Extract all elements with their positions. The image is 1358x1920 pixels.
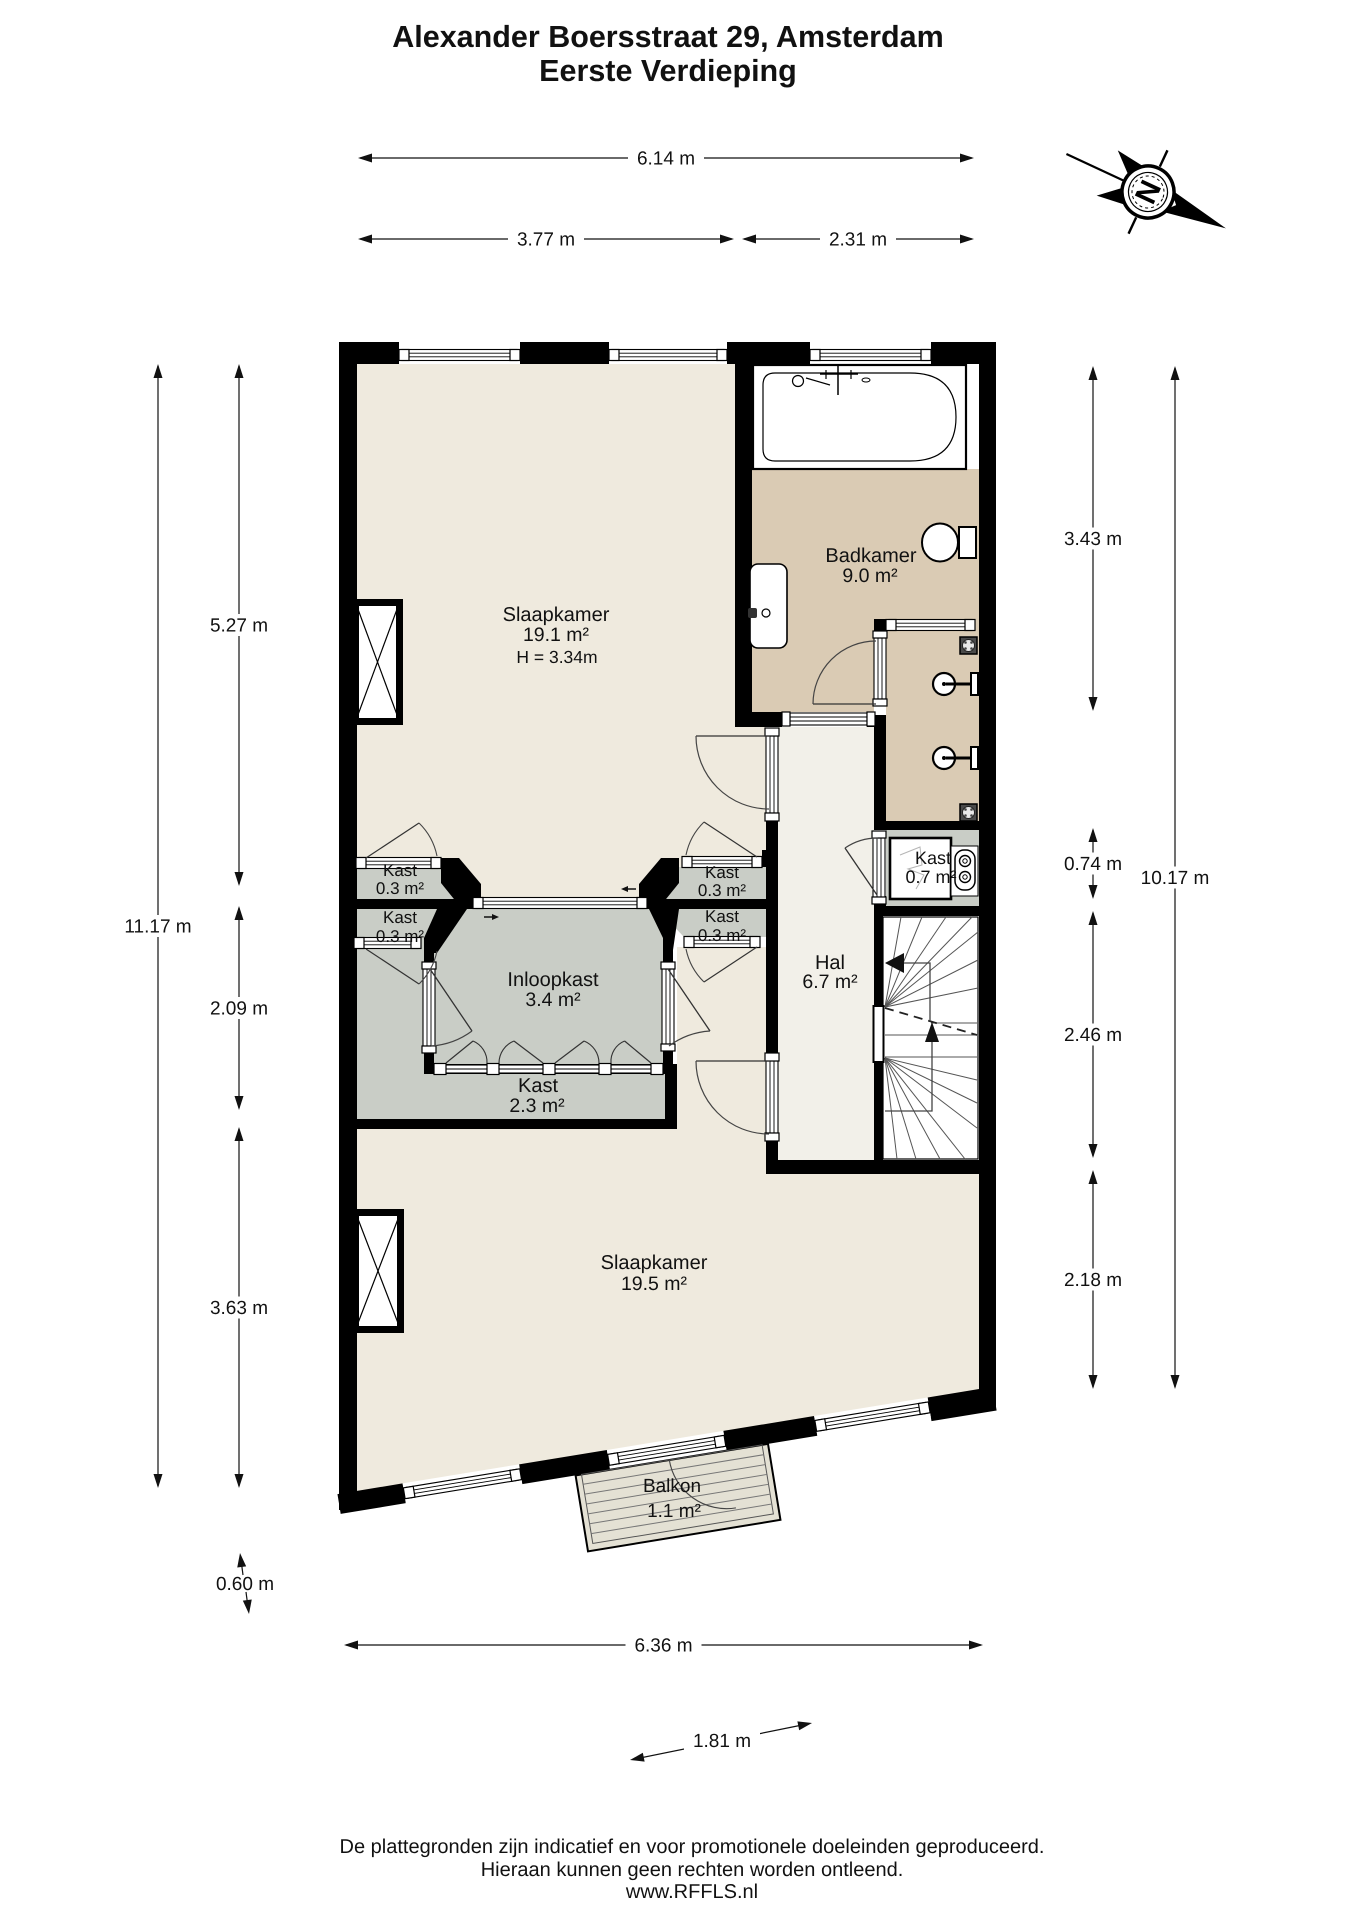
svg-text:Kast: Kast [383, 908, 417, 927]
svg-text:6.14 m: 6.14 m [637, 149, 695, 170]
svg-text:Hieraan kunnen geen rechten wo: Hieraan kunnen geen rechten worden ontle… [481, 1859, 904, 1881]
svg-text:3.4 m²: 3.4 m² [525, 989, 581, 1011]
svg-text:Kast: Kast [915, 848, 951, 868]
svg-text:3.77 m: 3.77 m [517, 230, 575, 251]
svg-text:2.46 m: 2.46 m [1064, 1025, 1122, 1046]
svg-text:Slaapkamer: Slaapkamer [601, 1252, 708, 1274]
svg-text:0.60 m: 0.60 m [216, 1574, 274, 1595]
svg-text:Kast: Kast [518, 1075, 558, 1097]
svg-text:Inloopkast: Inloopkast [507, 969, 599, 991]
svg-text:Eerste Verdieping: Eerste Verdieping [539, 54, 797, 88]
svg-text:0.3 m²: 0.3 m² [698, 926, 747, 945]
svg-text:Kast: Kast [383, 861, 417, 880]
svg-text:3.43 m: 3.43 m [1064, 529, 1122, 550]
svg-text:5.27 m: 5.27 m [210, 616, 268, 637]
svg-text:9.0 m²: 9.0 m² [842, 565, 898, 587]
svg-text:0.7 m²: 0.7 m² [905, 867, 956, 887]
svg-text:10.17 m: 10.17 m [1141, 868, 1210, 889]
svg-text:19.5 m²: 19.5 m² [621, 1273, 688, 1295]
svg-text:Balkon: Balkon [643, 1476, 701, 1497]
svg-text:19.1 m²: 19.1 m² [523, 624, 590, 646]
svg-text:Kast: Kast [705, 863, 739, 882]
svg-text:0.3 m²: 0.3 m² [376, 927, 425, 946]
svg-text:2.31 m: 2.31 m [829, 230, 887, 251]
svg-text:6.36 m: 6.36 m [634, 1636, 692, 1657]
svg-text:De plattegronden zijn indicati: De plattegronden zijn indicatief en voor… [340, 1836, 1045, 1858]
svg-text:3.63 m: 3.63 m [210, 1298, 268, 1319]
svg-text:0.74 m: 0.74 m [1064, 854, 1122, 875]
svg-text:Slaapkamer: Slaapkamer [503, 604, 610, 626]
svg-text:2.3 m²: 2.3 m² [509, 1095, 565, 1117]
svg-text:0.3 m²: 0.3 m² [698, 881, 747, 900]
svg-text:Alexander Boersstraat 29, Amst: Alexander Boersstraat 29, Amsterdam [392, 20, 944, 54]
svg-text:Badkamer: Badkamer [825, 545, 916, 567]
svg-text:1.1 m²: 1.1 m² [647, 1501, 701, 1522]
svg-text:Kast: Kast [705, 907, 739, 926]
svg-text:6.7 m²: 6.7 m² [802, 971, 858, 993]
svg-text:www.RFFLS.nl: www.RFFLS.nl [625, 1881, 758, 1903]
svg-text:1.81 m: 1.81 m [693, 1731, 751, 1752]
svg-text:H = 3.34m: H = 3.34m [516, 647, 597, 667]
svg-text:11.17 m: 11.17 m [124, 917, 191, 938]
svg-text:2.09 m: 2.09 m [210, 999, 268, 1020]
svg-text:2.18 m: 2.18 m [1064, 1270, 1122, 1291]
svg-text:0.3 m²: 0.3 m² [376, 879, 425, 898]
